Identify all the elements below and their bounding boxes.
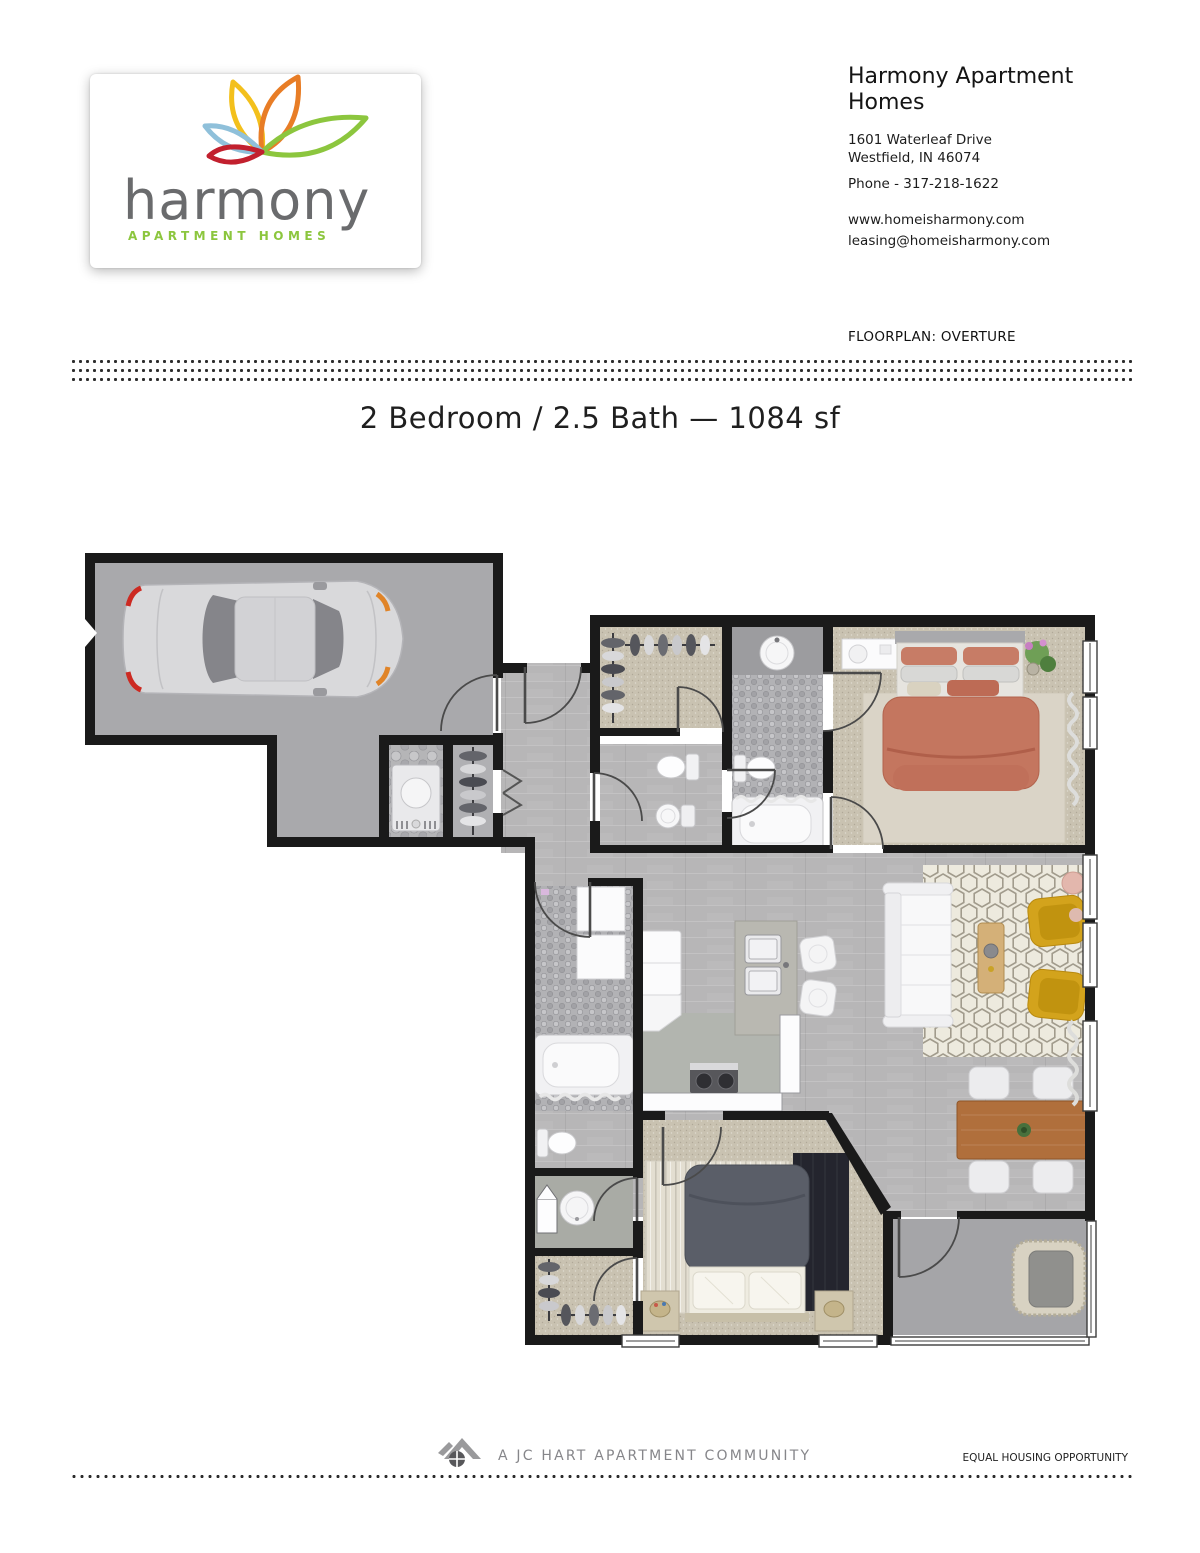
floorplan-sheet: harmony APARTMENT HOMES Harmony Apartmen… [0,0,1200,1553]
brand-logo-card: harmony APARTMENT HOMES [90,74,421,268]
plan-title: 2 Bedroom / 2.5 Bath — 1084 sf [0,401,1200,435]
floorplan-image [85,553,1115,1365]
coffee-table [978,923,1004,993]
brand-wordmark: harmony [123,174,370,228]
dotted-separator-top [70,355,1132,382]
side-table-small [1069,908,1083,922]
entry-floor [501,663,590,853]
address-line2: Westfield, IN 46074 [848,149,1138,167]
patio-chair [1013,1241,1085,1315]
washer [392,765,440,831]
refrigerator [637,931,681,1031]
bath1-tub [732,797,823,852]
jchart-house-icon [436,1435,484,1475]
brand-tagline: APARTMENT HOMES [128,229,330,243]
bedroom1-desk [842,639,898,669]
phone-line: Phone - 317-218-1622 [848,176,1138,192]
floorplan-label: FLOORPLAN: OVERTURE [848,329,1016,345]
bedroom1-bed [883,631,1039,791]
car-top-view [123,581,403,697]
bath1-sink [760,636,794,670]
website-link[interactable]: www.homeisharmony.com [848,212,1138,230]
equal-housing-label: EQUAL HOUSING OPPORTUNITY [963,1452,1129,1464]
address-line1: 1601 Waterleaf Drive [848,131,1138,149]
company-address: 1601 Waterleaf Drive Westfield, IN 46074 [848,131,1138,167]
community-label: A JC HART APARTMENT COMMUNITY [498,1448,811,1464]
linen-cabinet [537,1199,557,1233]
stove [690,1063,738,1093]
powder-toilet [657,754,699,780]
side-table [1062,872,1084,894]
company-name: Harmony Apartment Homes [848,64,1108,116]
dotted-separator-bottom [70,1473,1132,1480]
sofa [883,883,953,1027]
bedroom2-bed [685,1165,809,1322]
email-link[interactable]: leasing@homeisharmony.com [848,233,1138,251]
powder-sink [656,804,695,828]
contact-block: Harmony Apartment Homes 1601 Waterleaf D… [848,64,1138,251]
bath2-tub [535,1035,633,1100]
